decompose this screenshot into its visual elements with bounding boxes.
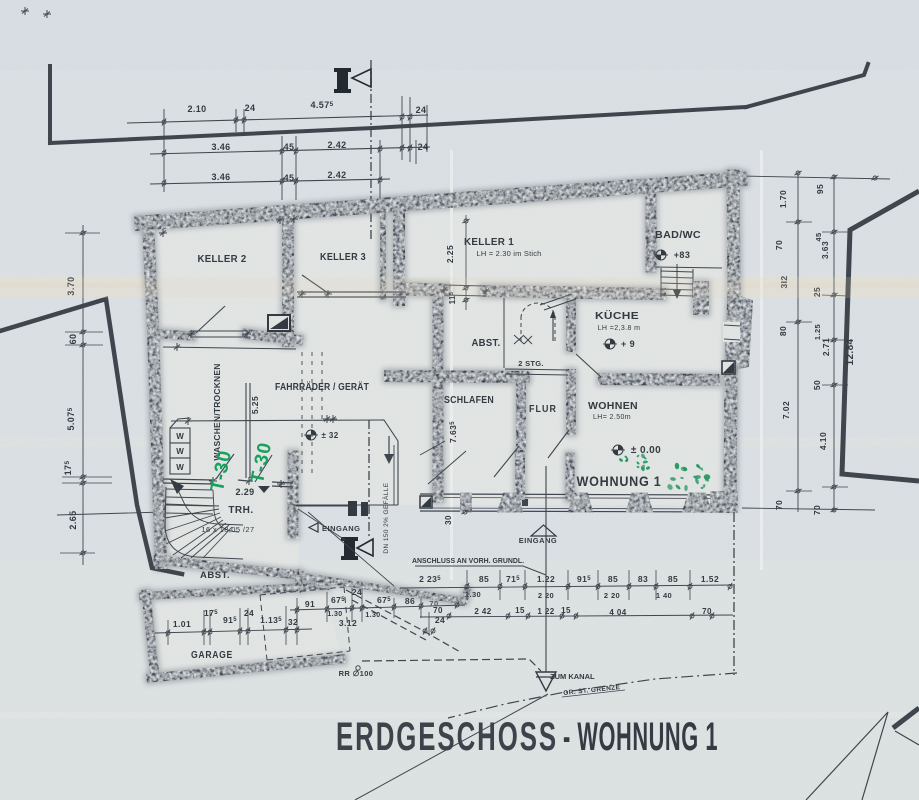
svg-text:ERDGESCHOSS: ERDGESCHOSS	[336, 715, 558, 759]
svg-text:- WOHNUNG 1: - WOHNUNG 1	[563, 715, 718, 759]
